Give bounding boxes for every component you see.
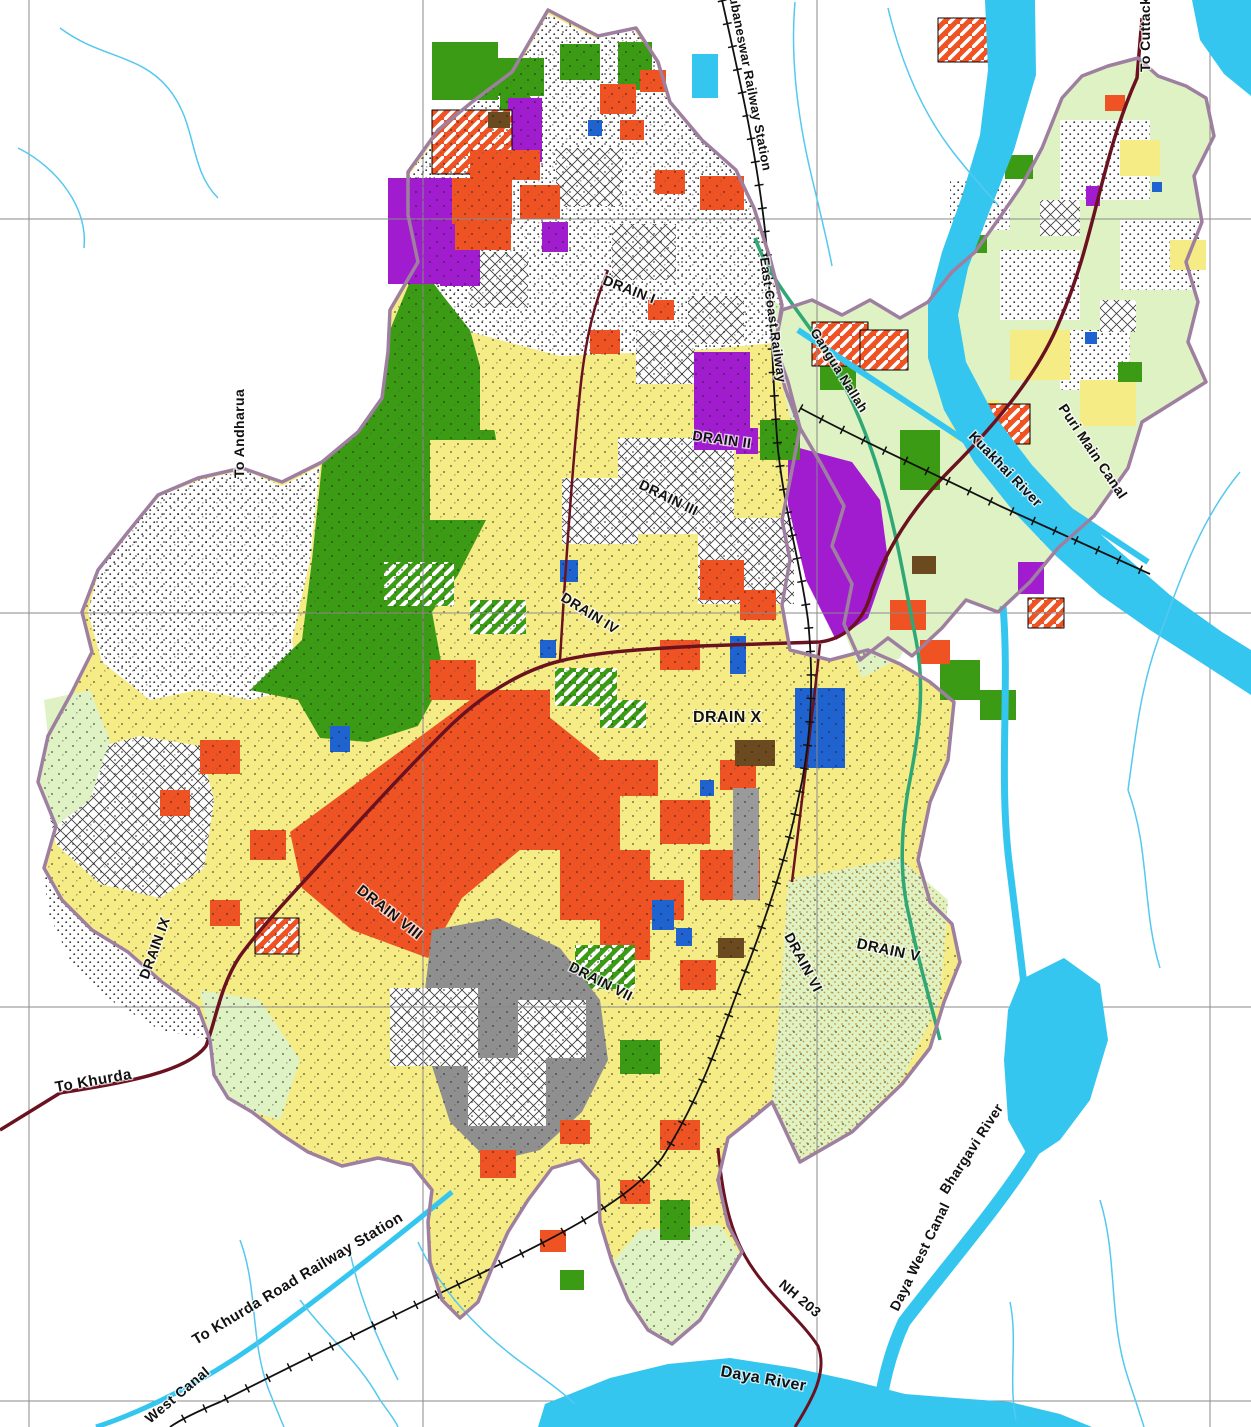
lobe-blue-1 [1085, 332, 1097, 344]
bhargavi-wide-body [1004, 958, 1108, 1160]
lobe-yellow-4 [1120, 140, 1160, 176]
lobe-green-7 [980, 690, 1016, 720]
label-to-andharua: To Andharua [231, 389, 247, 478]
stream-1 [794, 2, 832, 266]
stream-3 [60, 28, 218, 198]
label-bhargavi-river: Bhargavi River [936, 1100, 1006, 1196]
stream-5 [240, 1240, 284, 1427]
bhargavi-upper-reach [1003, 606, 1024, 985]
map-root: To Bhubaneswar Railway StationEast Coast… [0, 0, 1251, 1427]
kiln-stripe-ne2 [860, 330, 908, 370]
lobe-yellow-2 [1080, 380, 1136, 426]
lobe-orange-1 [1105, 95, 1125, 111]
stream-8 [350, 1252, 398, 1380]
label-west-canal: West Canal [142, 1363, 213, 1426]
lobe-hatch-1 [1040, 200, 1080, 236]
lobe-yellow-1 [1010, 330, 1070, 380]
lobe-green-2 [1118, 362, 1142, 382]
label-to-cuttack: To Cuttack [1137, 0, 1153, 72]
lobe-hatch-2 [1100, 300, 1136, 332]
stream-4 [18, 148, 84, 248]
parcel-texture [38, 10, 960, 1344]
stream-10 [1128, 790, 1160, 968]
lobe-blue-2 [1152, 182, 1162, 192]
map-page: To Bhubaneswar Railway StationEast Coast… [0, 0, 1251, 1427]
pond-top-center [692, 54, 718, 98]
urban-texture [38, 10, 960, 1344]
lobe-dots-3 [1000, 250, 1080, 320]
map-canvas: To Bhubaneswar Railway StationEast Coast… [0, 0, 1251, 1427]
label-to-khurda: To Khurda [54, 1066, 134, 1096]
label-drain-x: DRAIN X [693, 709, 762, 726]
stream-11 [1100, 1200, 1144, 1427]
green-s2 [560, 1270, 584, 1290]
pond-top-right [1192, 0, 1251, 96]
stream-6 [300, 1300, 398, 1427]
brown-c1 [912, 556, 936, 574]
